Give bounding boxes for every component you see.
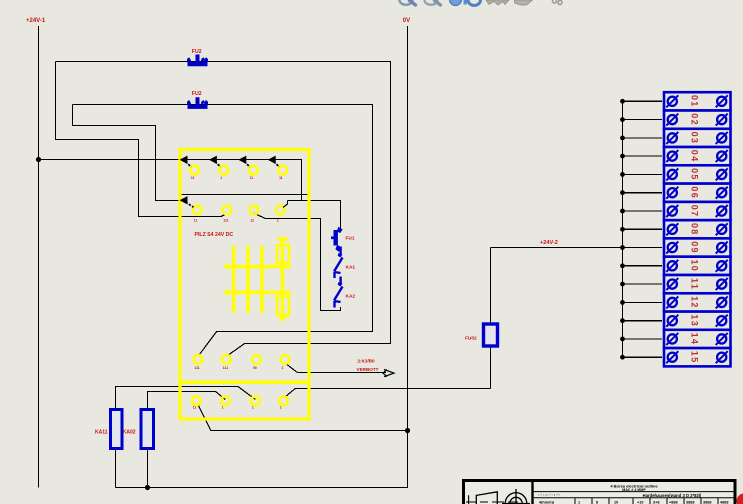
svg-text:VERBOTT: VERBOTT: [357, 367, 379, 372]
svg-text:0V: 0V: [403, 18, 410, 24]
svg-text:2:K3/B0: 2:K3/B0: [358, 359, 376, 364]
svg-text:11: 11: [193, 406, 197, 410]
svg-text:15: 15: [690, 351, 700, 364]
svg-text:10: 10: [614, 501, 618, 504]
svg-text:KA2: KA2: [346, 294, 356, 300]
svg-text:FU2: FU2: [192, 91, 202, 97]
svg-text:: ·· : • : ··· • ····: : ·· : • : ··· • ····: [538, 493, 561, 497]
svg-text:KA1: KA1: [346, 265, 356, 271]
svg-text:11: 11: [191, 176, 195, 180]
svg-text:04: 04: [690, 150, 700, 163]
svg-text:FU2: FU2: [192, 49, 202, 55]
svg-text:+10: +10: [637, 501, 643, 504]
svg-text:10: 10: [690, 259, 700, 272]
svg-text:3+8: 3+8: [653, 501, 659, 504]
svg-text:14: 14: [690, 333, 700, 346]
svg-text:1: 1: [222, 406, 224, 410]
svg-text:09: 09: [690, 241, 700, 254]
svg-text:KA11: KA11: [95, 429, 108, 435]
svg-text:111: 111: [194, 366, 199, 370]
svg-text:1: 1: [280, 406, 282, 410]
svg-text:11: 11: [690, 278, 700, 290]
svg-text:PILZ S4 24V DC: PILZ S4 24V DC: [195, 232, 234, 238]
svg-text:1: 1: [578, 501, 580, 504]
svg-text:3888: 3888: [703, 501, 711, 504]
svg-text:KA02: KA02: [123, 429, 136, 435]
svg-text:Hardehausen(wand 3 D 2*83)|: Hardehausen(wand 3 D 2*83)|: [643, 493, 702, 498]
svg-text:01: 01: [690, 95, 700, 108]
svg-text:1: 1: [282, 366, 284, 370]
svg-text:11: 11: [250, 176, 254, 180]
svg-text:02: 02: [690, 113, 700, 126]
svg-text:1: 1: [277, 219, 279, 223]
svg-text:11: 11: [194, 219, 198, 223]
svg-text:11: 11: [279, 176, 283, 180]
svg-text:4888: 4888: [720, 501, 728, 504]
svg-text:1: 1: [220, 176, 222, 180]
svg-text:90: 90: [253, 366, 257, 370]
svg-text:111: 111: [223, 366, 228, 370]
svg-text:+24V-2: +24V-2: [540, 240, 558, 246]
svg-text:8: 8: [596, 501, 598, 504]
svg-text:111: 111: [223, 219, 228, 223]
svg-text:4(hmm)(: 4(hmm)(: [539, 501, 555, 504]
svg-text:11: 11: [250, 219, 254, 223]
svg-text:FU1: FU1: [346, 236, 355, 242]
svg-text:FU02: FU02: [465, 336, 477, 342]
svg-text:12: 12: [690, 296, 700, 309]
svg-text:+24V-1: +24V-1: [26, 18, 46, 24]
svg-text:08: 08: [690, 223, 700, 236]
svg-text:1: 1: [252, 406, 254, 410]
svg-text:07: 07: [690, 205, 700, 218]
svg-text:3888: 3888: [686, 501, 694, 504]
svg-text:06: 06: [690, 186, 700, 199]
svg-text:+888: +888: [669, 501, 678, 504]
svg-text:13: 13: [690, 314, 700, 327]
svg-text:03: 03: [690, 132, 700, 145]
svg-text:05: 05: [690, 168, 700, 181]
